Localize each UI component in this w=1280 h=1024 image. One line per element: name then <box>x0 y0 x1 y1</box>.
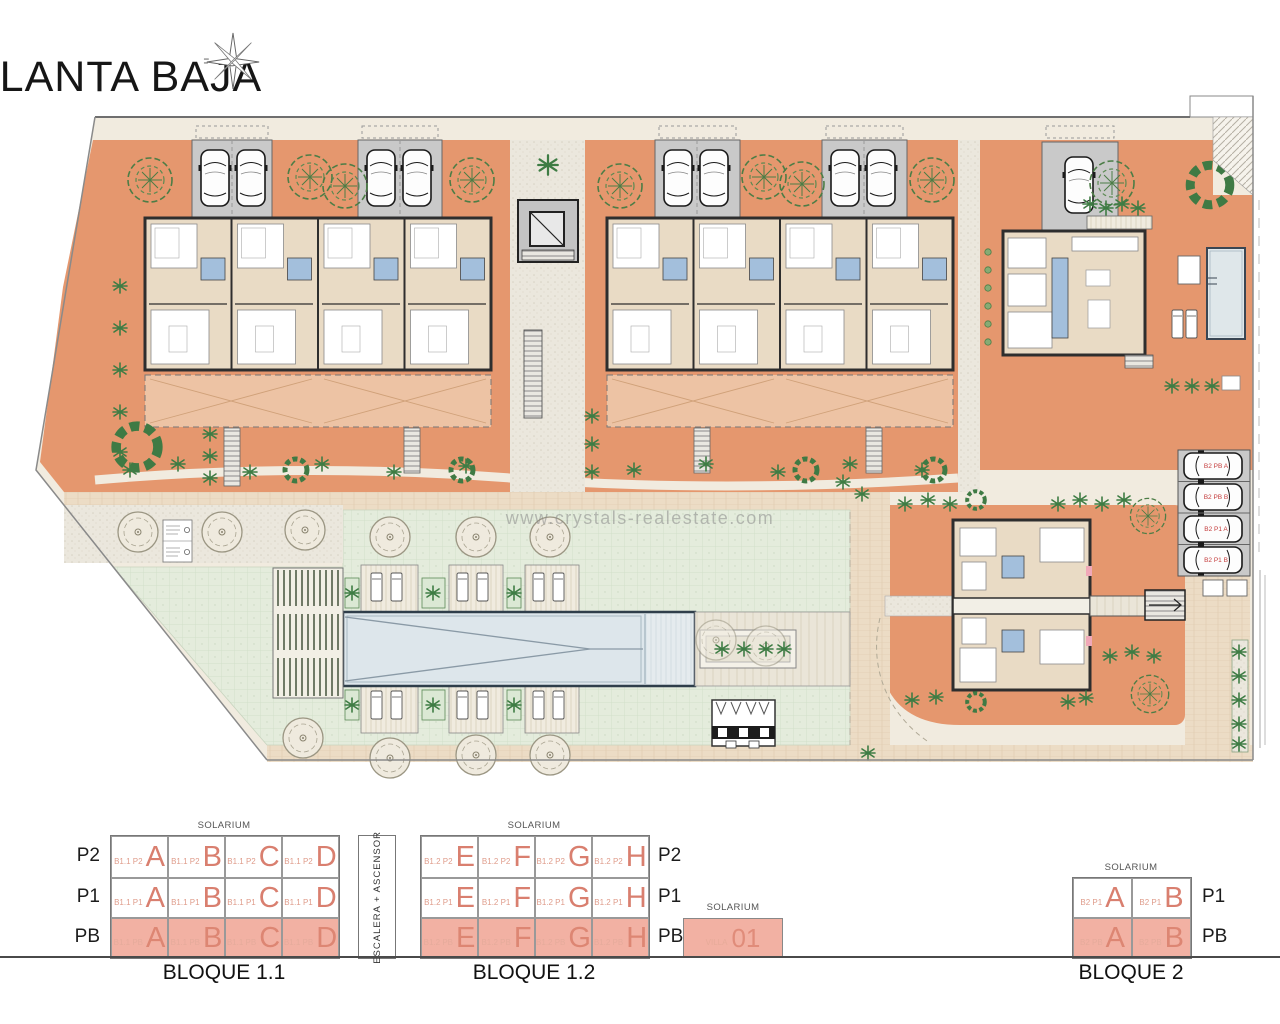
unit-cell: B1.2 P1F <box>478 878 535 918</box>
bloque-1-1-grid: B1.1 P2A B1.1 P2B B1.1 P2C B1.1 P2D B1.1… <box>110 835 340 959</box>
unit-cell: B1.1 P1B <box>168 878 225 918</box>
unit-cell: B1.1 PBD <box>282 918 339 958</box>
row-label-pb: PB <box>1202 926 1227 948</box>
unit-cell: B1.1 P2B <box>168 836 225 878</box>
unit-cell: B1.2 P1H <box>592 878 649 918</box>
unit-cell: B2 P1A <box>1073 878 1132 918</box>
bloque-1-2-caption: BLOQUE 1.2 <box>473 961 596 985</box>
row-label-p1: P1 <box>64 886 100 908</box>
unit-cell: B1.2 P1G <box>535 878 592 918</box>
unit-cell: B1.2 P2H <box>592 836 649 878</box>
solarium-label: SOLARIUM <box>707 902 760 913</box>
unit-cell: B1.2 P2F <box>478 836 535 878</box>
site-plan-page: PLANTA BAJA <box>0 0 1280 1024</box>
unit-cell: B1.2 PBH <box>592 918 649 958</box>
unit-cell: B1.1 PBA <box>111 918 168 958</box>
unit-cell: B1.2 P2G <box>535 836 592 878</box>
unit-cell: B1.2 P1E <box>421 878 478 918</box>
ground-line <box>0 956 1280 958</box>
unit-cell: B1.1 P1A <box>111 878 168 918</box>
row-label-pb: PB <box>64 926 100 948</box>
row-label-pb: PB <box>658 926 683 948</box>
unit-cell: B1.1 P2D <box>282 836 339 878</box>
bloque-1-2-grid: B1.2 P2E B1.2 P2F B1.2 P2G B1.2 P2H B1.2… <box>420 835 650 959</box>
unit-cell: B2 PBA <box>1073 918 1132 958</box>
bloque-2-grid: B2 P1A B2 P1B B2 PBA B2 PBB <box>1072 877 1192 959</box>
unit-cell: B1.1 P1D <box>282 878 339 918</box>
unit-cell: B1.1 PBC <box>225 918 282 958</box>
unit-cell: B1.2 PBG <box>535 918 592 958</box>
solarium-label: SOLARIUM <box>508 820 561 831</box>
escalera-ascensor-box: ESCALERA + ASCENSOR <box>358 835 396 959</box>
row-label-p1: P1 <box>658 886 681 908</box>
solarium-label: SOLARIUM <box>1105 862 1158 873</box>
bloque-1-1-caption: BLOQUE 1.1 <box>163 961 286 985</box>
unit-cell: B1.2 P2E <box>421 836 478 878</box>
unit-cell: B1.1 P1C <box>225 878 282 918</box>
unit-cell: B2 PBB <box>1132 918 1191 958</box>
solarium-label: SOLARIUM <box>198 820 251 831</box>
villa-cell: VILLA 01 <box>683 918 783 957</box>
row-label-p2: P2 <box>658 845 681 867</box>
unit-cell: B1.1 PBB <box>168 918 225 958</box>
unit-cell: B1.2 PBE <box>421 918 478 958</box>
row-label-p2: P2 <box>64 845 100 867</box>
levels-schematic: SOLARIUM P2 P1 PB B1.1 P2A B1.1 P2B B1.1… <box>0 0 1280 1024</box>
unit-cell: B2 P1B <box>1132 878 1191 918</box>
row-label-p1: P1 <box>1202 886 1225 908</box>
bloque-2-caption: BLOQUE 2 <box>1078 961 1183 985</box>
unit-cell: B1.2 PBF <box>478 918 535 958</box>
unit-cell: B1.1 P2A <box>111 836 168 878</box>
unit-cell: B1.1 P2C <box>225 836 282 878</box>
